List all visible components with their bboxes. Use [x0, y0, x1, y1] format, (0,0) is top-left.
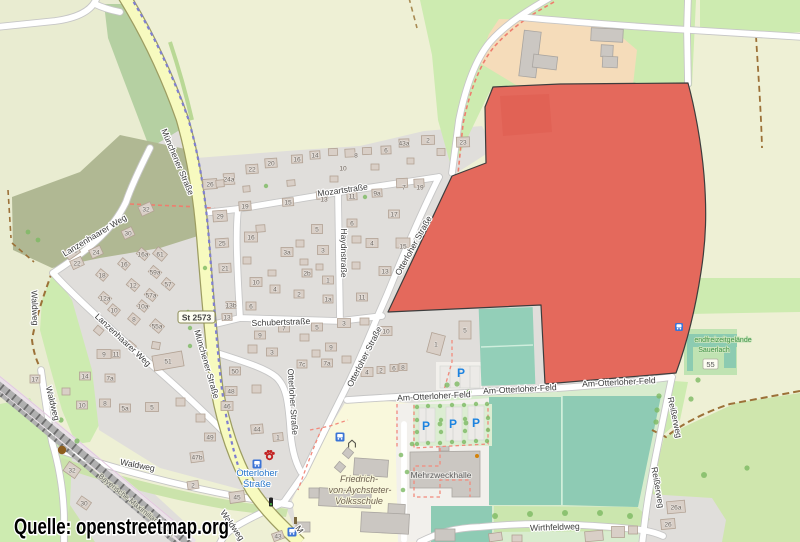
svg-text:Waldweg: Waldweg — [29, 290, 40, 326]
svg-text:2: 2 — [191, 482, 195, 489]
svg-text:55a: 55a — [151, 323, 162, 330]
svg-text:9: 9 — [329, 344, 333, 351]
svg-text:2: 2 — [426, 137, 430, 144]
svg-text:Mehrzweckhalle: Mehrzweckhalle — [411, 470, 472, 480]
svg-text:8: 8 — [401, 364, 405, 371]
svg-text:32: 32 — [68, 467, 76, 474]
svg-text:6: 6 — [392, 365, 396, 372]
svg-text:Volksschule: Volksschule — [335, 496, 383, 506]
svg-text:9: 9 — [102, 351, 106, 358]
svg-text:7: 7 — [402, 184, 406, 191]
svg-text:9a: 9a — [373, 190, 381, 197]
svg-text:16: 16 — [247, 234, 255, 241]
svg-text:17: 17 — [390, 211, 398, 218]
svg-text:48: 48 — [227, 388, 235, 395]
svg-text:4: 4 — [273, 286, 277, 293]
svg-text:6: 6 — [384, 147, 388, 154]
svg-text:3a: 3a — [283, 249, 291, 256]
svg-text:18: 18 — [98, 272, 106, 279]
svg-text:29: 29 — [216, 213, 224, 220]
svg-text:20: 20 — [267, 160, 275, 167]
svg-text:14: 14 — [311, 152, 319, 159]
svg-text:14: 14 — [81, 373, 89, 380]
svg-text:4: 4 — [370, 240, 374, 247]
svg-text:Straße: Straße — [243, 479, 271, 489]
svg-text:17: 17 — [31, 376, 39, 383]
svg-text:22: 22 — [248, 166, 256, 173]
svg-text:3: 3 — [342, 320, 346, 327]
svg-text:10a: 10a — [137, 303, 148, 310]
svg-text:23: 23 — [459, 139, 467, 146]
svg-text:61: 61 — [156, 251, 164, 258]
svg-text:57: 57 — [164, 281, 172, 288]
svg-text:21: 21 — [221, 265, 229, 272]
svg-text:59a: 59a — [149, 269, 160, 276]
svg-text:von-Aychsteter-: von-Aychsteter- — [329, 485, 392, 495]
svg-text:5a: 5a — [121, 405, 129, 412]
svg-text:6: 6 — [249, 303, 253, 310]
svg-text:45: 45 — [233, 494, 241, 501]
svg-text:32: 32 — [142, 206, 150, 213]
svg-text:7a: 7a — [323, 360, 331, 367]
svg-text:4: 4 — [365, 369, 369, 376]
svg-text:7c: 7c — [299, 361, 307, 368]
svg-text:12a: 12a — [99, 295, 110, 302]
svg-text:43: 43 — [274, 533, 282, 540]
svg-text:25: 25 — [218, 240, 226, 247]
svg-text:5: 5 — [150, 404, 154, 411]
svg-text:Quelle: openstreetmap.org: Quelle: openstreetmap.org — [14, 514, 229, 539]
svg-text:10: 10 — [252, 279, 260, 286]
svg-text:30: 30 — [80, 500, 88, 507]
svg-text:endfreizeitgelände: endfreizeitgelände — [694, 337, 751, 344]
svg-text:26a: 26a — [670, 504, 681, 511]
svg-text:3: 3 — [270, 349, 274, 356]
svg-text:P: P — [457, 366, 465, 380]
svg-text:47b: 47b — [191, 454, 202, 461]
svg-text:2b: 2b — [303, 270, 311, 277]
svg-text:19: 19 — [241, 203, 249, 210]
svg-text:P: P — [449, 417, 457, 431]
svg-text:30: 30 — [124, 230, 132, 237]
svg-text:49: 49 — [206, 434, 214, 441]
svg-text:1: 1 — [326, 277, 330, 284]
svg-text:19: 19 — [416, 184, 424, 191]
svg-text:10: 10 — [339, 165, 347, 172]
svg-text:22: 22 — [73, 260, 81, 267]
svg-text:10: 10 — [110, 307, 118, 314]
svg-text:Wirthfeldweg: Wirthfeldweg — [530, 521, 580, 533]
svg-text:2: 2 — [297, 291, 301, 298]
svg-text:5: 5 — [463, 327, 467, 334]
svg-text:11: 11 — [113, 351, 120, 358]
svg-text:1: 1 — [434, 341, 438, 348]
svg-text:5: 5 — [315, 324, 319, 331]
svg-text:P: P — [422, 419, 430, 433]
svg-text:26: 26 — [206, 181, 214, 188]
svg-text:16: 16 — [293, 156, 301, 163]
svg-text:Schubertstraße: Schubertstraße — [251, 316, 310, 328]
svg-text:24: 24 — [92, 249, 100, 256]
svg-text:Haydnstraße: Haydnstraße — [339, 228, 349, 277]
svg-text:43a: 43a — [398, 140, 409, 147]
svg-text:11: 11 — [349, 193, 356, 200]
svg-text:24a: 24a — [223, 176, 234, 183]
svg-text:9: 9 — [258, 332, 262, 339]
svg-text:8: 8 — [132, 316, 136, 323]
svg-text:16: 16 — [120, 261, 128, 268]
svg-text:15: 15 — [284, 199, 292, 206]
svg-text:6: 6 — [350, 220, 354, 227]
svg-text:16a: 16a — [137, 251, 148, 258]
svg-text:13: 13 — [223, 314, 231, 321]
svg-text:7a: 7a — [106, 375, 114, 382]
svg-text:1: 1 — [276, 434, 280, 441]
svg-text:3: 3 — [321, 247, 325, 254]
svg-text:13: 13 — [381, 268, 389, 275]
svg-text:1a: 1a — [324, 296, 332, 303]
svg-text:St 2573: St 2573 — [182, 313, 212, 323]
svg-text:Sauerlach: Sauerlach — [698, 347, 730, 354]
svg-text:57a: 57a — [145, 292, 156, 299]
svg-text:5: 5 — [315, 226, 319, 233]
svg-text:51: 51 — [164, 358, 172, 365]
svg-text:46: 46 — [223, 403, 231, 410]
svg-text:P: P — [472, 416, 480, 430]
svg-text:12: 12 — [129, 282, 137, 289]
svg-text:55: 55 — [706, 360, 714, 369]
svg-text:11: 11 — [359, 294, 366, 301]
svg-text:2: 2 — [379, 367, 383, 374]
svg-text:26: 26 — [664, 521, 672, 528]
svg-text:Friedrich-: Friedrich- — [340, 474, 378, 484]
svg-text:50: 50 — [231, 368, 239, 375]
svg-text:10: 10 — [78, 402, 86, 409]
svg-text:8: 8 — [103, 400, 107, 407]
svg-text:13b: 13b — [225, 302, 236, 309]
svg-text:Otterloher: Otterloher — [236, 468, 277, 478]
svg-text:44: 44 — [253, 426, 261, 433]
svg-text:8: 8 — [354, 152, 358, 159]
